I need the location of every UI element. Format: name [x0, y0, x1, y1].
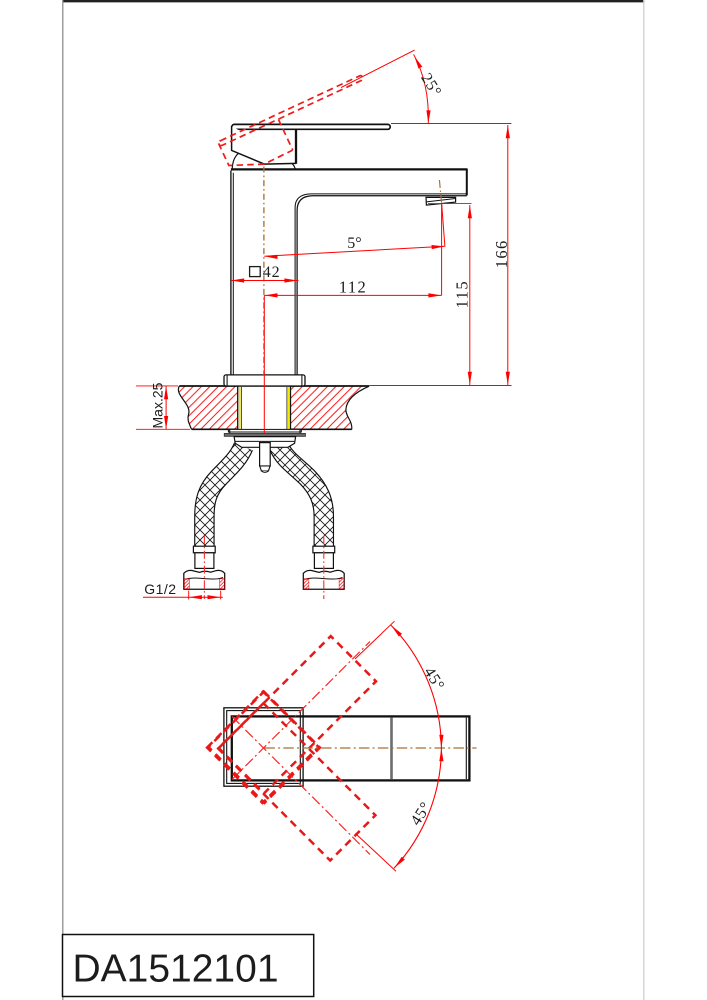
svg-text:115: 115 — [452, 280, 471, 308]
svg-text:G1/2: G1/2 — [144, 581, 176, 597]
svg-text:112: 112 — [339, 277, 367, 296]
svg-text:DA1512101: DA1512101 — [73, 948, 279, 991]
svg-text:166: 166 — [492, 239, 511, 268]
svg-text:5°: 5° — [347, 235, 361, 252]
svg-text:Max.25: Max.25 — [150, 382, 166, 428]
svg-text:42: 42 — [263, 264, 281, 281]
